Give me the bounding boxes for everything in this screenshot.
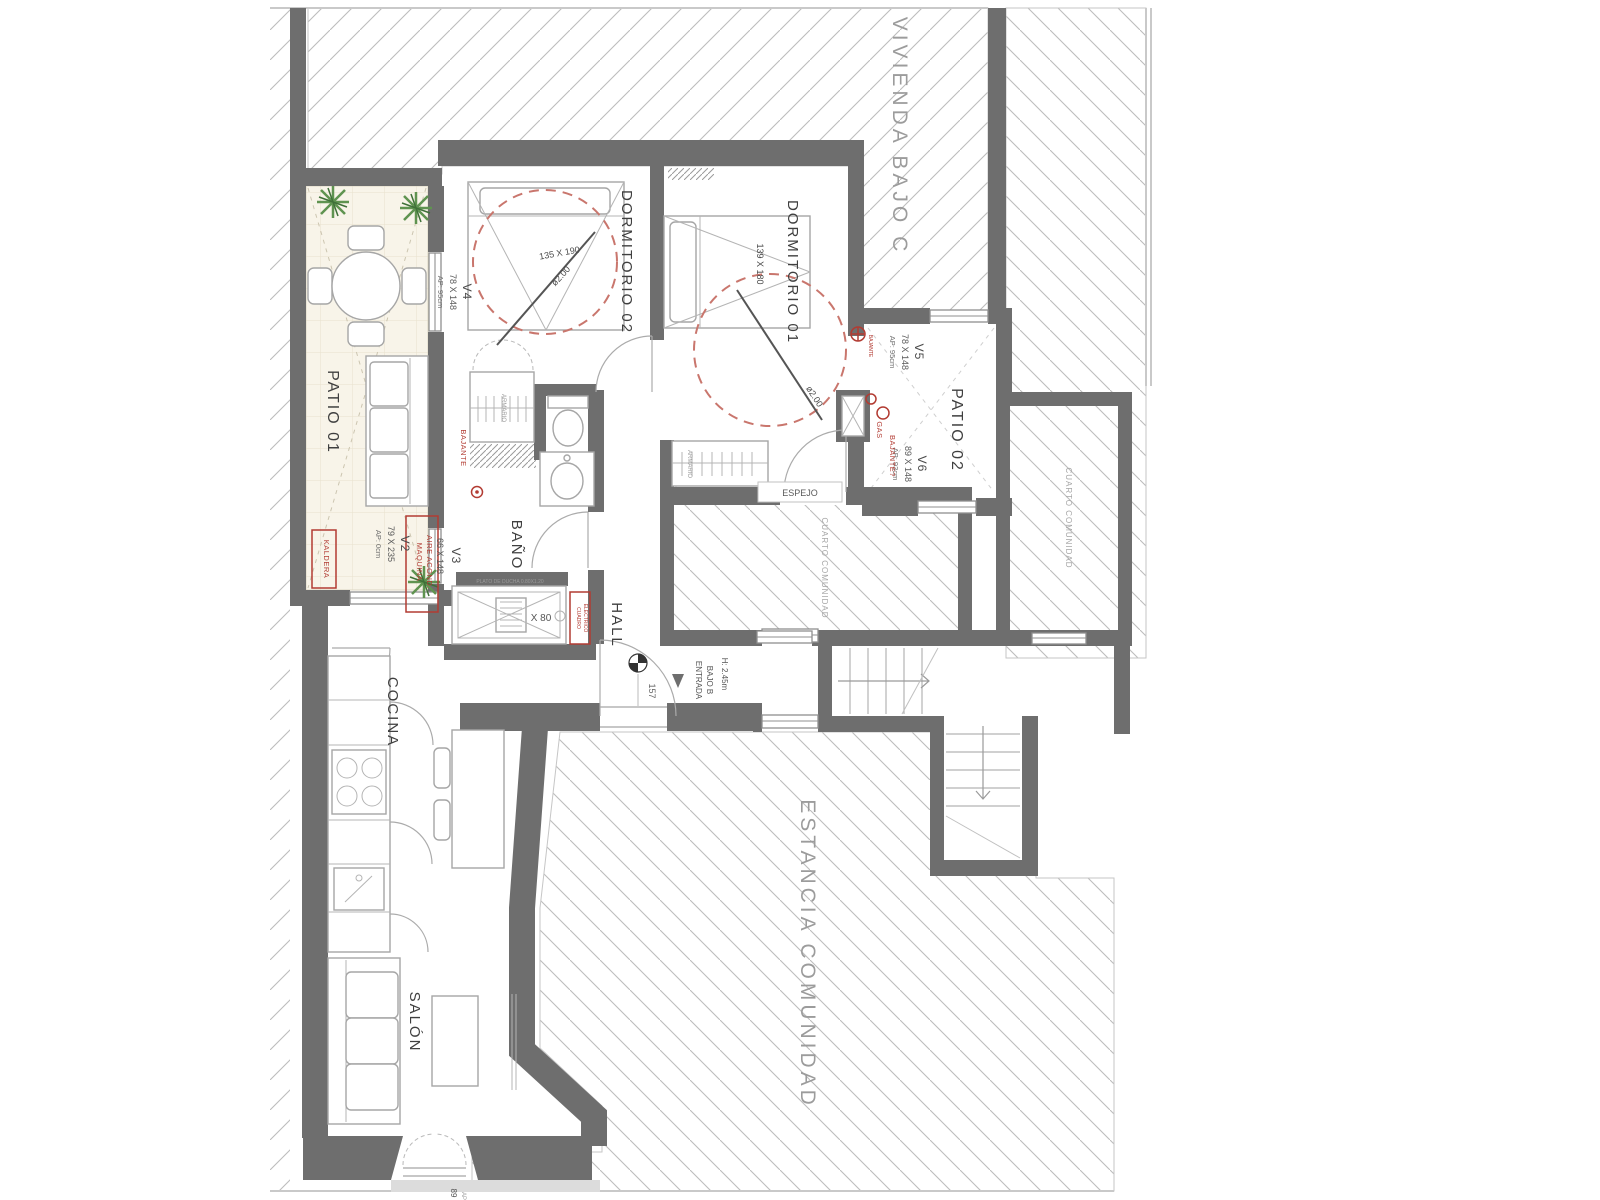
gas-label: GAS xyxy=(875,421,884,438)
plant-icon xyxy=(317,186,349,218)
hatch-cuarto2 xyxy=(672,505,960,632)
compass-icon xyxy=(629,654,647,706)
panel-label-2: ELECTRICO xyxy=(582,604,588,633)
downpipe-left-label: BAJANTE xyxy=(459,429,468,466)
dorm2-door xyxy=(596,336,652,392)
bed1-size-label: 139 X 180 xyxy=(755,243,765,284)
window-label-v2-sill: AP: 0cm xyxy=(374,530,383,558)
sink xyxy=(540,452,594,506)
window-label-v5: V5 78 X 148 AP: 95cm xyxy=(888,334,926,370)
toilet xyxy=(548,396,588,446)
entrance-height-label: H: 2.45m xyxy=(720,658,729,691)
window-label-v4-size: 78 X 148 xyxy=(448,274,458,310)
ac-label-1: MAQUINA xyxy=(415,543,424,582)
hob xyxy=(332,750,386,814)
window-label-v5-id: V5 xyxy=(912,344,926,361)
window-v6 xyxy=(918,501,976,513)
entrance-arrow-icon xyxy=(672,674,684,688)
vent-hatch-closet xyxy=(470,444,536,468)
edge-cut-label-2: AP xyxy=(460,1192,466,1200)
patio-02-floor xyxy=(868,328,994,492)
window-label-v4-id: V4 xyxy=(460,284,474,301)
stairs-upper-flight xyxy=(838,648,938,714)
coffee-table xyxy=(432,996,478,1086)
boiler-label: KALDERA xyxy=(322,540,331,579)
room-label-kitchen: COCINA xyxy=(384,677,401,747)
kitchen-sink xyxy=(334,868,384,910)
window-v5 xyxy=(930,310,988,322)
cuarto2-door xyxy=(757,631,812,643)
window-label-v3-id: V3 xyxy=(449,548,463,565)
room-label-dorm-01: DORMITORIO 01 xyxy=(784,200,801,344)
door-width-label: 157 xyxy=(647,683,657,698)
cuarto1-door xyxy=(1032,633,1086,644)
wardrobe2-label: ARMARIO xyxy=(500,394,506,422)
room-label-dorm-02: DORMITORIO 02 xyxy=(618,190,635,334)
downpipe-dot-icon xyxy=(472,487,483,498)
entrance-label-1: ENTRADA xyxy=(694,661,703,700)
downpipe-crosshair-icon xyxy=(851,327,865,341)
mirror-label: ESPEJO xyxy=(782,488,818,498)
room-label-patio-02: PATIO 02 xyxy=(948,388,965,472)
window-label-v2-size: 79 X 235 xyxy=(386,526,396,562)
plant-icon xyxy=(400,192,432,224)
panel-label-1: CUADRO xyxy=(575,607,581,629)
kitchen-island xyxy=(434,730,504,868)
room-label-bath: BAÑO xyxy=(508,520,525,571)
neighbor-label-vivienda: VIVIENDA BAJO C xyxy=(888,17,911,256)
closet2-doors xyxy=(473,340,533,370)
hatch-left-strip xyxy=(270,8,290,1191)
floor-plan-svg: VIVIENDA BAJO C ESTANCIA COMUNIDAD CUART… xyxy=(0,0,1600,1200)
window-label-v3-size: 66 X 148 xyxy=(435,538,445,574)
window-label-v5-sill: AP: 95cm xyxy=(888,336,897,369)
salon-sofa xyxy=(328,958,400,1124)
window-label-v6-id: V6 xyxy=(915,456,929,473)
downpipe-q-label: BAJANTE? xyxy=(888,435,897,477)
floor-plan-page: VIVIENDA BAJO C ESTANCIA COMUNIDAD CUART… xyxy=(0,0,1600,1200)
room-label-hall: HALL xyxy=(608,602,625,648)
main-door-opening xyxy=(600,703,667,731)
shower-tray-label: PLATO DE DUCHA 0.80X1.20 xyxy=(476,579,544,585)
downpipe-small-label: BAJANTE xyxy=(867,335,873,358)
window-label-v4-sill: AP: 95cm xyxy=(436,276,445,309)
patio-sofa xyxy=(366,356,428,506)
room-label-patio-01: PATIO 01 xyxy=(324,370,341,454)
bath-door xyxy=(532,512,588,568)
entry-door-lower xyxy=(762,715,818,728)
salon-french-doors xyxy=(403,1134,466,1165)
room-label-living: SALÓN xyxy=(406,992,423,1053)
wardrobe1-label: ARMARIO xyxy=(686,450,692,478)
window-label-v5-size: 78 X 148 xyxy=(900,334,910,370)
window-label-v6-size: 89 X 148 xyxy=(903,446,913,482)
vent-hatch-dorm1-top xyxy=(668,168,714,180)
entrance-label-2: BAJO B xyxy=(705,666,714,694)
window-label-v2-id: V2 xyxy=(398,536,412,553)
bed-dorm2 xyxy=(468,182,624,345)
stairs-lower-flight xyxy=(946,726,1020,858)
hatch-estancia xyxy=(472,732,1114,1191)
edge-cut-label-1: 89 xyxy=(449,1189,458,1198)
shower-size-label: X 80 xyxy=(531,613,552,624)
neighbor-label-cuarto2: CUARTO COMUNIDAD xyxy=(820,517,829,618)
neighbor-label-cuarto1: CUARTO COMUNIDAD xyxy=(1064,467,1073,568)
shaft xyxy=(842,396,864,436)
ac-label-2: AIRE ACOND. xyxy=(425,535,434,589)
neighbor-label-estancia: ESTANCIA COMUNIDAD xyxy=(796,799,819,1109)
kitchen-counter xyxy=(328,656,433,952)
